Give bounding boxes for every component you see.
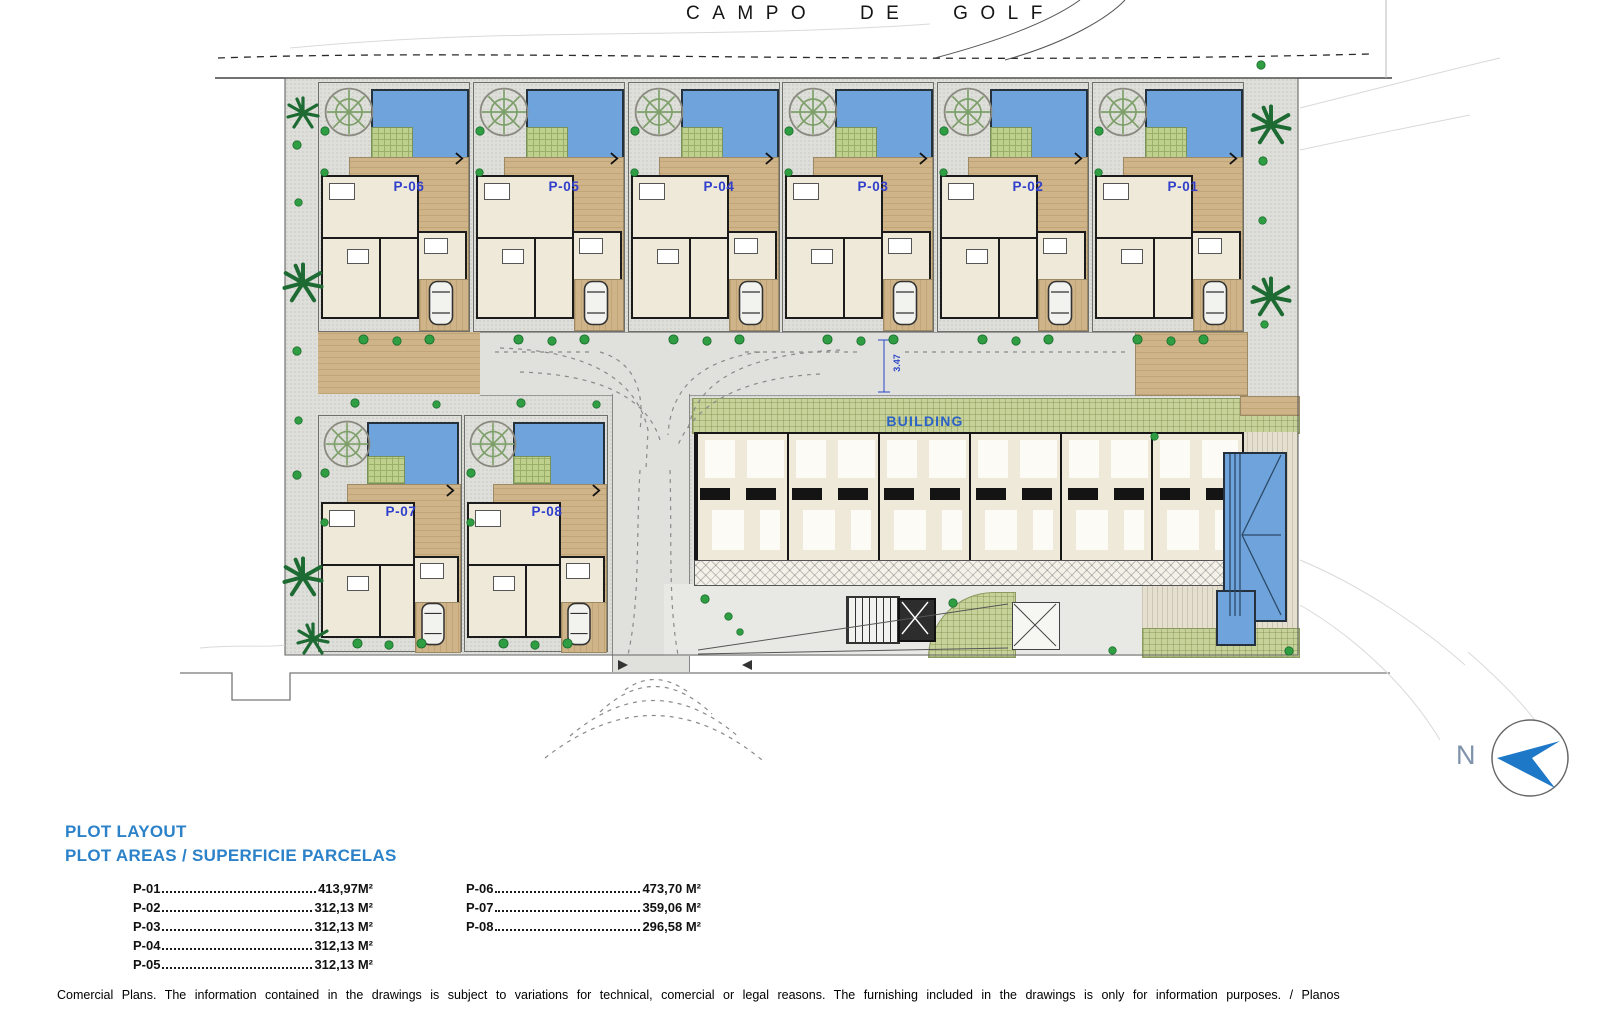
driveway: [419, 279, 469, 331]
legend: PLOT LAYOUT PLOT AREAS / SUPERFICIE PARC…: [65, 820, 397, 868]
building-terrace: [694, 560, 1242, 586]
plot-id: P-04: [133, 938, 160, 953]
compass-arrow-icon: [1497, 741, 1560, 788]
driveway: [561, 602, 607, 653]
driveway: [574, 279, 624, 331]
elevator: [898, 598, 936, 642]
dotted-leader: [162, 910, 312, 912]
plot-p04: P-04: [628, 82, 780, 332]
kids-pool: [1216, 590, 1256, 646]
bush-icon: [1257, 61, 1265, 69]
villa-house: [467, 502, 561, 638]
bedroom-wing: [572, 231, 622, 283]
bedroom-wing: [1036, 231, 1086, 283]
villa-house: [940, 175, 1038, 319]
villa-house: [631, 175, 729, 319]
plot-label: P-01: [1129, 179, 1237, 194]
plot-p07: P-07: [318, 415, 462, 652]
building-front-lawn: [692, 398, 1300, 434]
plot-p02: P-02: [937, 82, 1089, 332]
apartment-building: [694, 432, 1244, 564]
plot-p03: P-03: [782, 82, 934, 332]
interior-road: [480, 332, 1135, 396]
pergola-trellis: [513, 456, 551, 484]
north-label: N: [1456, 740, 1476, 771]
plot-area-value: 312,13 M²: [314, 900, 373, 915]
villa-house: [476, 175, 574, 319]
plot-area-value: 312,13 M²: [314, 938, 373, 953]
plot-area-value: 473,70 M²: [642, 881, 701, 896]
plot-area-value: 296,58 M²: [642, 919, 701, 934]
lower-rooms: [700, 510, 1238, 550]
dotted-leader: [162, 948, 312, 950]
plot-id: P-01: [133, 881, 160, 896]
road-dimension-label: 3.47: [892, 354, 902, 372]
villa-house: [321, 502, 415, 638]
plot-area-row: P-08296,58 M²: [466, 915, 701, 934]
plot-id: P-02: [133, 900, 160, 915]
plot-id: P-08: [466, 919, 493, 934]
plot-area-value: 312,13 M²: [314, 919, 373, 934]
north-arrow: [1492, 720, 1568, 796]
wood-strip: [1240, 396, 1300, 416]
legend-title: PLOT LAYOUT: [65, 820, 397, 844]
villa-house: [785, 175, 883, 319]
plot-id: P-06: [466, 881, 493, 896]
pergola-trellis: [526, 127, 568, 159]
villa-house: [1095, 175, 1193, 319]
plot-id: P-03: [133, 919, 160, 934]
plot-p06: P-06: [318, 82, 470, 332]
bedroom-wing: [413, 556, 459, 606]
bedroom-wing: [1191, 231, 1241, 283]
plot-area-row: P-04312,13 M²: [133, 934, 373, 953]
building-label: BUILDING: [860, 413, 990, 429]
golf-course-label: CAMPO DE GOLF: [686, 3, 1055, 25]
driveway: [415, 602, 461, 653]
driveway: [1038, 279, 1088, 331]
plot-p08: P-08: [464, 415, 608, 652]
plot-label: P-05: [510, 179, 618, 194]
site-plan-page: CAMPO DE GOLF P-06 P-05 P-04 P-03 P-02: [0, 0, 1600, 1024]
pergola-trellis: [681, 127, 723, 159]
compass-circle: [1492, 720, 1568, 796]
driveway: [729, 279, 779, 331]
dotted-leader: [495, 929, 640, 931]
pergola-trellis: [371, 127, 413, 159]
plot-area-row: P-05312,13 M²: [133, 953, 373, 972]
dotted-leader: [495, 891, 640, 893]
plot-id: P-07: [466, 900, 493, 915]
plot-areas-column-2: P-06473,70 M² P-07359,06 M² P-08296,58 M…: [466, 877, 701, 934]
pergola-trellis: [835, 127, 877, 159]
plot-label: P-06: [355, 179, 463, 194]
pergola-trellis: [1145, 127, 1187, 159]
plot-area-value: 413,97M²: [318, 881, 373, 896]
upper-rooms: [700, 440, 1238, 478]
bedroom-wing: [881, 231, 931, 283]
plot-label: P-08: [497, 504, 597, 519]
dotted-leader: [162, 967, 312, 969]
plot-p01: P-01: [1092, 82, 1244, 332]
plot-area-row: P-07359,06 M²: [466, 896, 701, 915]
stairs: [846, 596, 900, 644]
footer-disclaimer: Comercial Plans. The information contain…: [57, 988, 1600, 1002]
driveway: [883, 279, 933, 331]
plot-label: P-04: [665, 179, 773, 194]
villa-house: [321, 175, 419, 319]
plot-id: P-05: [133, 957, 160, 972]
driveway: [1193, 279, 1243, 331]
plot-areas-column-1: P-01413,97M² P-02312,13 M² P-03312,13 M²…: [133, 877, 373, 972]
pergola-trellis: [367, 456, 405, 484]
plot-label: P-07: [351, 504, 451, 519]
bedroom-wing: [727, 231, 777, 283]
plot-area-row: P-01413,97M²: [133, 877, 373, 896]
dotted-leader: [162, 929, 312, 931]
legend-subtitle: PLOT AREAS / SUPERFICIE PARCELAS: [65, 844, 397, 868]
pergola-trellis: [990, 127, 1032, 159]
bedroom-wing: [559, 556, 605, 606]
rear-deck-band-left: [318, 332, 480, 394]
core-wall-band: [700, 488, 1238, 500]
plot-area-row: P-06473,70 M²: [466, 877, 701, 896]
plot-label: P-02: [974, 179, 1082, 194]
rear-deck-band-right: [1135, 332, 1248, 396]
plot-area-row: P-03312,13 M²: [133, 915, 373, 934]
plot-area-row: P-02312,13 M²: [133, 896, 373, 915]
plot-label: P-03: [819, 179, 927, 194]
plot-area-value: 359,06 M²: [642, 900, 701, 915]
service-stair: [1012, 602, 1060, 650]
plot-p05: P-05: [473, 82, 625, 332]
dotted-leader: [162, 891, 316, 893]
dotted-leader: [495, 910, 640, 912]
plot-area-value: 312,13 M²: [314, 957, 373, 972]
bedroom-wing: [417, 231, 467, 283]
